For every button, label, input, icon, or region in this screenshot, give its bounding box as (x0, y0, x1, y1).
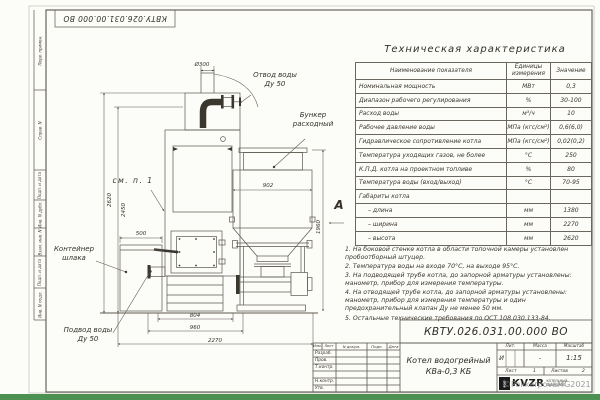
table-row: – высотамм2620 (356, 231, 592, 245)
tech-table-header: Наименование показателя Единицы измерени… (356, 63, 592, 80)
table-row: Расход водым³/ч10 (356, 107, 592, 121)
slag-label-line1: Контейнер (47, 245, 101, 254)
tb-row-prov: Пров. (313, 357, 338, 364)
margin-field-perv-primen: Перв. примен. (34, 10, 46, 90)
dim-slag-width: 500 (127, 231, 155, 237)
doc-number: КВТУ.026.031.00.000 ВО (400, 322, 592, 342)
tb-sheet-label: Лист (505, 369, 516, 374)
outlet-label: Отвод воды Ду 50 (244, 71, 306, 89)
tb-header-list: Лист (322, 343, 336, 350)
table-row: К.П.Д. котла на проектном топливе%80 (356, 162, 592, 176)
fuel-feeder (236, 273, 312, 312)
margin-field-podp-data-2: Подп. и дата (34, 256, 46, 288)
product-title-line2: КВа-0,3 КБ (426, 367, 471, 376)
tb-sheets-cell: Листов 2 (544, 367, 592, 375)
tb-mass-value: - (524, 353, 556, 364)
table-row: Рабочее давление водыМПа (кгс/см²)0,6(6,… (356, 121, 592, 135)
margin-field-sprav-n: Справ. N (34, 90, 46, 170)
tb-row-nkontr: Н.контр. (313, 378, 338, 385)
tb-header-podp: Подп. (367, 343, 387, 350)
dim-bunker-height: 1960 (316, 216, 322, 238)
dim-bunker-width: 902 (254, 183, 282, 189)
tb-lit-value: И (497, 353, 506, 364)
tb-row-tkontr: Т.контр. (313, 364, 338, 371)
tb-sheets-label: Листов (551, 369, 568, 374)
table-row: Диапазон рабочего регулирования%30-100 (356, 93, 592, 107)
view-a-marker: А (329, 198, 349, 214)
bottom-green-strip (0, 394, 600, 400)
slag-label-line2: шлака (47, 254, 101, 263)
margin-field-inv-dubl: Инв. N дубл. (34, 200, 46, 228)
tech-table-title: Техническая характеристика (370, 44, 580, 55)
inlet-label-line2: Ду 50 (57, 335, 119, 344)
col-name: Наименование показателя (356, 63, 507, 80)
tb-sheet-value: 1 (533, 369, 536, 374)
margin-field-vzam-inv: Взам. инв. N (34, 228, 46, 256)
tb-scale-value: 1:15 (556, 353, 592, 364)
col-units: Единицы измерения (507, 63, 551, 80)
outlet-label-line2: Ду 50 (244, 80, 306, 89)
inlet-label-line1: Подвод воды (57, 326, 119, 335)
outlet-label-line1: Отвод воды (244, 71, 306, 80)
water-outlet-pipe (203, 95, 241, 128)
bunker-label-line2: расходный (281, 120, 345, 129)
top-stamp-box: КВТУ.026.031.00.000 ВО (55, 10, 175, 27)
table-row: Гидравлическое сопротивление котлаМПа (к… (356, 135, 592, 149)
table-row: Температура уходящих газов, не более°С25… (356, 148, 592, 162)
leader-lines (96, 95, 344, 333)
tb-header-data: Дата (387, 343, 400, 350)
bunker-label-line1: Бункер (281, 111, 345, 120)
table-row: – ширинамм2270 (356, 217, 592, 231)
drawing-sheet: КВТУ.026.031.00.000 ВО Перв. примен. Спр… (0, 0, 600, 400)
slag-container-label: Контейнер шлака (47, 245, 101, 263)
note-item: 2. Температура воды на входе 70°С, на вы… (345, 263, 592, 271)
margin-field-inv-podl: Инв. N подл. (34, 288, 46, 320)
dim-body-height: 2450 (121, 199, 127, 221)
table-row: Номинальная мощностьМВт0,3 (356, 80, 592, 94)
see-note-label: см. п. 1 (110, 176, 156, 186)
slag-container (120, 245, 162, 311)
table-row: Габариты котла (356, 190, 592, 204)
table-row: Температура воды (вход/выход)°С70-95 (356, 176, 592, 190)
dim-total-height: 2620 (107, 189, 113, 211)
margin-field-podp-data-1: Подп. и дата (34, 170, 46, 200)
inlet-label: Подвод воды Ду 50 (57, 326, 119, 344)
dim-base-width: 804 (181, 313, 209, 319)
dim-chimney-dia: Ø300 (188, 62, 216, 68)
note-item: 1. На боковой стенке котла в области топ… (345, 246, 592, 262)
tb-row-utv: Утв. (313, 385, 338, 392)
tb-lit-label: Лит. (497, 343, 524, 350)
product-title: Котел водогрейный КВа-0,3 КБ (400, 345, 497, 387)
tb-mass-label: Масса (524, 343, 556, 350)
tb-header-ndok: N докум. (336, 343, 367, 350)
dim-overall-width: 2270 (201, 338, 229, 344)
product-title-line1: Котел водогрейный (407, 356, 491, 365)
dim-frame-width: 960 (181, 325, 209, 331)
tb-sheets-value: 2 (582, 369, 585, 374)
top-stamp-number: КВТУ.026.031.00.000 ВО (63, 14, 167, 23)
table-row: – длинамм1380 (356, 204, 592, 218)
note-item: 3. На подводящей трубе котла, до запорно… (345, 272, 592, 288)
bunker-label: Бункер расходный (281, 111, 345, 129)
tech-table: Наименование показателя Единицы измерени… (355, 62, 592, 246)
col-value: Значение (551, 63, 592, 80)
tb-row-razrab: Разраб. (313, 350, 338, 357)
tb-scale-label: Масштаб (556, 343, 592, 350)
copyright-watermark: ©PolikarpovaMG2021 (503, 380, 591, 389)
note-item: 4. На отводящей трубе котла, до запорной… (345, 289, 592, 313)
tb-header-izm: Изм. (313, 343, 322, 350)
technical-notes: 1. На боковой стенке котла в области топ… (345, 246, 592, 324)
tb-sheet-cell: Лист 1 (497, 367, 544, 375)
